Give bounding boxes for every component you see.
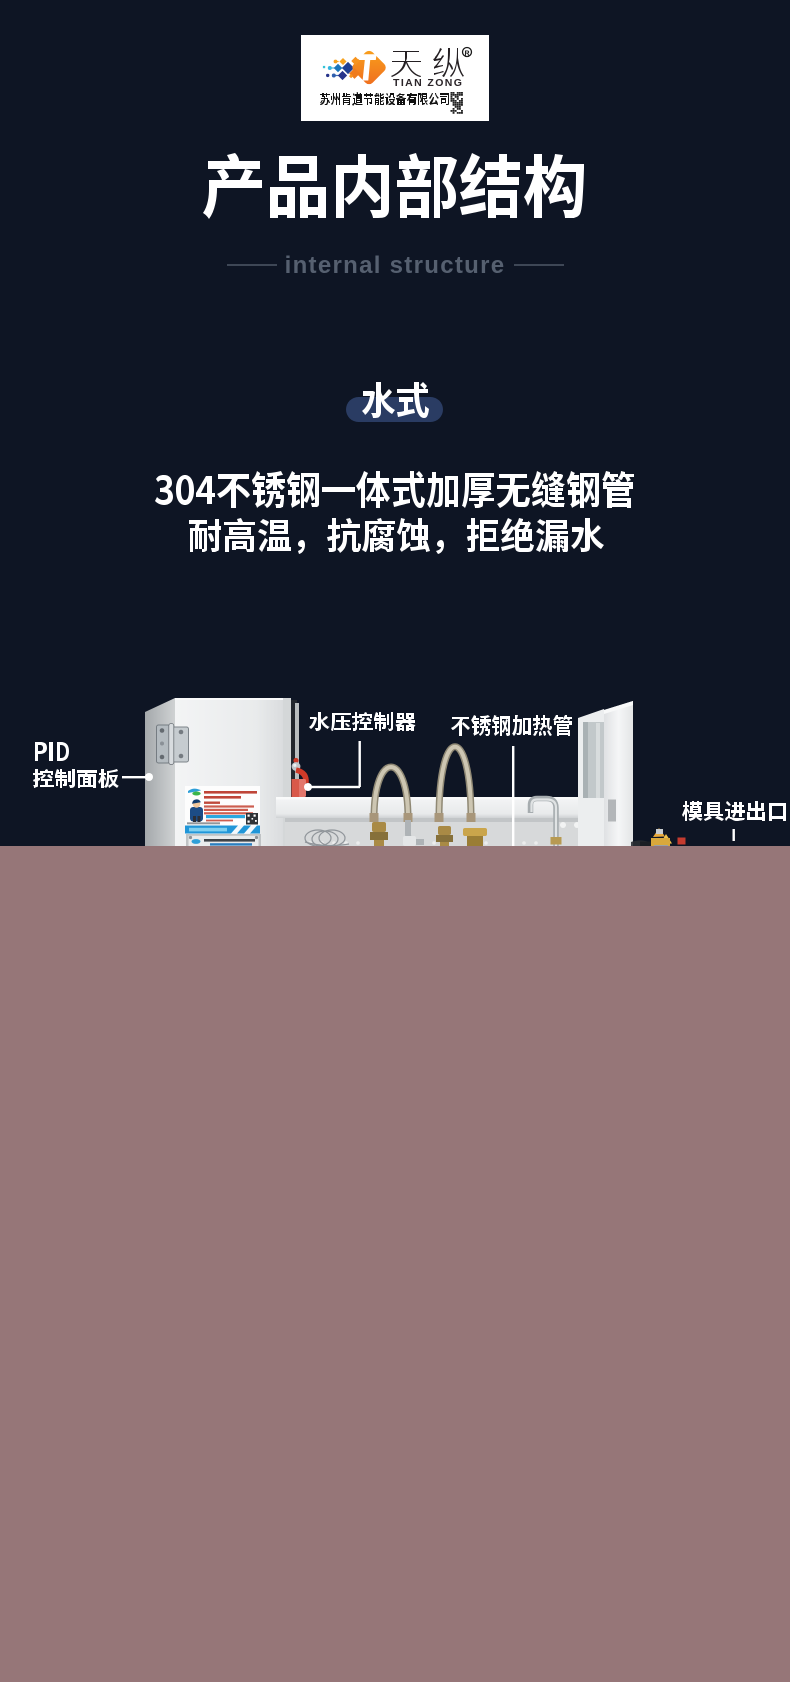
svg-text:TIAN ZONG: TIAN ZONG <box>393 77 463 89</box>
svg-text:R: R <box>464 51 469 58</box>
